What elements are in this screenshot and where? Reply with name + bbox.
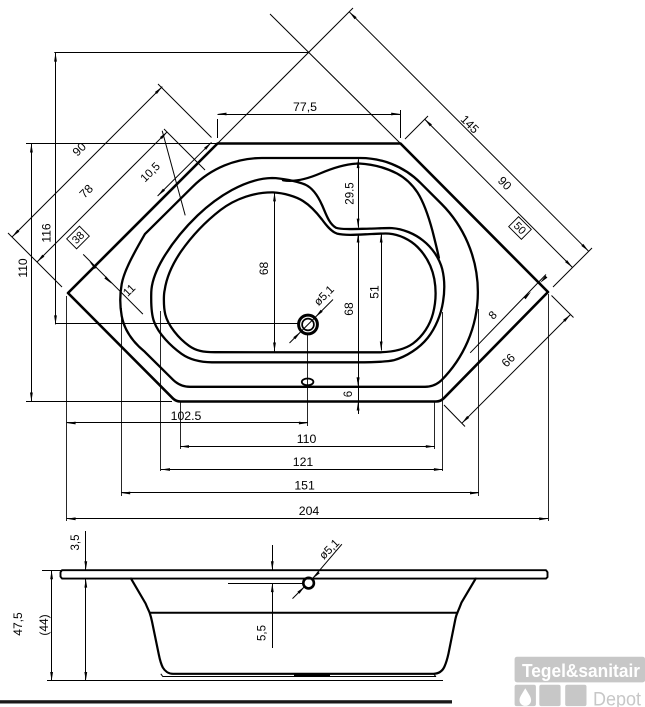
svg-text:Depot: Depot: [593, 689, 642, 707]
svg-text:29.5: 29.5: [344, 182, 356, 204]
svg-text:204: 204: [299, 504, 320, 518]
svg-text:68: 68: [257, 262, 271, 276]
svg-text:47,5: 47,5: [11, 612, 25, 636]
svg-text:110: 110: [16, 258, 30, 277]
svg-text:68: 68: [342, 302, 356, 316]
svg-text:121: 121: [293, 455, 314, 469]
svg-text:102.5: 102.5: [171, 409, 202, 423]
svg-text:151: 151: [294, 478, 315, 492]
svg-text:3,5: 3,5: [70, 535, 82, 551]
svg-text:110: 110: [297, 432, 317, 446]
svg-text:Tegel&sanitair: Tegel&sanitair: [522, 660, 640, 681]
svg-text:51: 51: [368, 285, 382, 299]
svg-text:(44): (44): [37, 614, 51, 635]
svg-text:6: 6: [343, 391, 355, 397]
svg-text:5,5: 5,5: [257, 625, 269, 641]
svg-text:116: 116: [39, 223, 53, 242]
svg-text:77,5: 77,5: [293, 100, 317, 114]
